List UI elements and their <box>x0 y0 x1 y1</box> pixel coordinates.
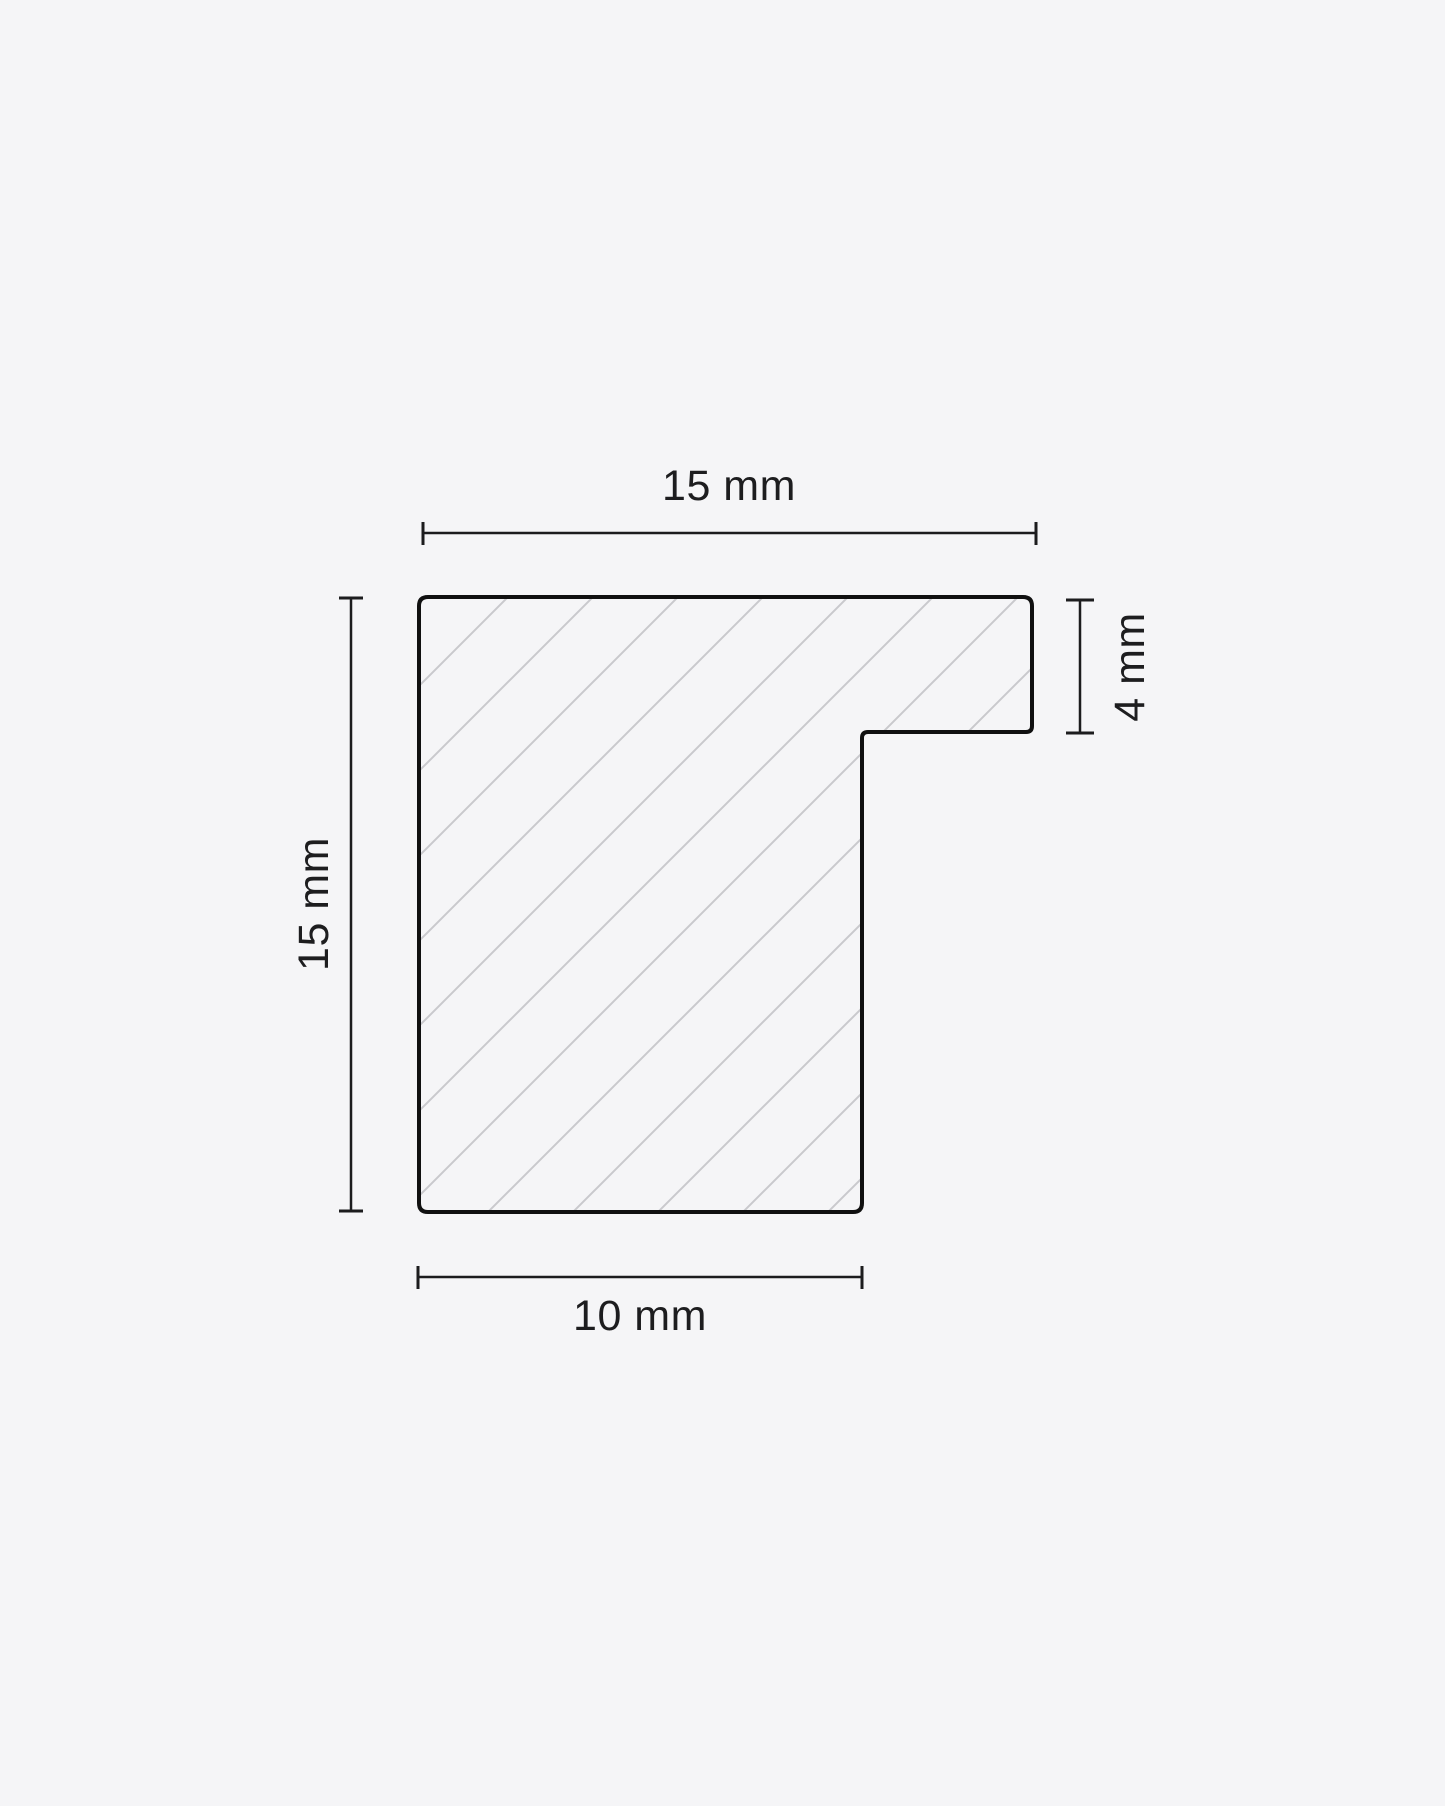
dimension-label-top: 15 mm <box>619 460 839 512</box>
dimension-label-right: 4 mm <box>1104 557 1156 777</box>
profile-drawing <box>0 0 1445 1806</box>
diagram-canvas: 15 mm 15 mm 4 mm 10 mm <box>0 0 1445 1806</box>
dimension-label-left: 15 mm <box>288 794 340 1014</box>
profile-outline <box>419 597 1032 1212</box>
dimension-top <box>423 522 1036 545</box>
dimension-right <box>1066 600 1094 733</box>
dimension-label-bottom: 10 mm <box>530 1290 750 1342</box>
dimension-left <box>339 598 363 1211</box>
dimension-bottom <box>418 1266 862 1289</box>
